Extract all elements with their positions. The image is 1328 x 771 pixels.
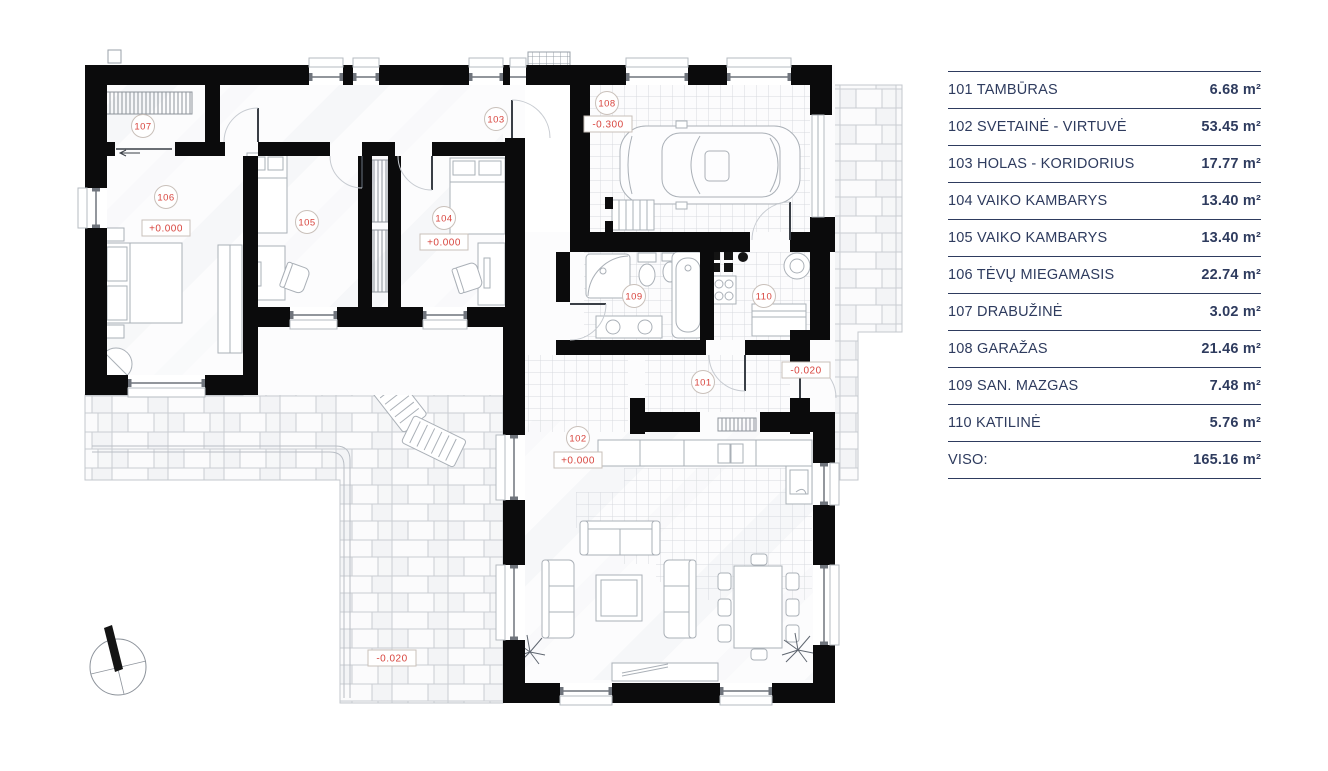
tv-bench <box>612 663 718 681</box>
room-name: 108 GARAŽAS <box>948 341 1048 357</box>
page: 107106105104103108109110101102+0.000+0.0… <box>0 0 1328 771</box>
elevation-marker: +0.000 <box>554 452 602 468</box>
room-name: 106 TĖVŲ MIEGAMASIS <box>948 267 1114 283</box>
wardrobe-shelving <box>104 92 192 114</box>
double-bed <box>104 228 182 338</box>
svg-text:-0.300: -0.300 <box>592 120 623 131</box>
room-name: VISO: <box>948 452 988 468</box>
elevation-marker: -0.300 <box>584 116 632 132</box>
closet <box>372 230 388 292</box>
svg-text:110: 110 <box>756 292 773 303</box>
room-name: 101 TAMBŪRAS <box>948 82 1058 98</box>
svg-text:-0.020: -0.020 <box>376 654 407 665</box>
kitchen-sink <box>786 466 812 504</box>
table-row: 109 SAN. MAZGAS 7.48 m² <box>948 367 1261 404</box>
svg-text:106: 106 <box>157 193 174 204</box>
double-sink <box>596 316 662 338</box>
room-marker-103: 103 <box>485 108 508 131</box>
svg-text:107: 107 <box>134 122 151 133</box>
svg-text:103: 103 <box>487 115 504 126</box>
table-row: 103 HOLAS - KORIDORIUS 17.77 m² <box>948 145 1261 182</box>
closet <box>372 160 388 222</box>
room-area: 3.02 m² <box>1210 304 1261 320</box>
table-row: 105 VAIKO KAMBARYS 13.40 m² <box>948 219 1261 256</box>
room-name: 109 SAN. MAZGAS <box>948 378 1078 394</box>
table-row: 102 SVETAINĖ - VIRTUVĖ 53.45 m² <box>948 108 1261 145</box>
toilet <box>638 253 656 286</box>
svg-text:109: 109 <box>625 292 642 303</box>
room-area: 53.45 m² <box>1201 119 1261 135</box>
svg-text:-0.020: -0.020 <box>790 366 821 377</box>
svg-text:102: 102 <box>569 434 586 445</box>
room-marker-110: 110 <box>753 285 776 308</box>
loveseat <box>542 560 574 638</box>
room-area: 5.76 m² <box>1210 415 1261 431</box>
room-marker-105: 105 <box>296 211 319 234</box>
room-area: 7.48 m² <box>1210 378 1261 394</box>
table-row: 106 TĖVŲ MIEGAMASIS 22.74 m² <box>948 256 1261 293</box>
table-row: 107 DRABUŽINĖ 3.02 m² <box>948 293 1261 330</box>
room-area: 17.77 m² <box>1201 156 1261 172</box>
elevation-marker: +0.000 <box>420 234 468 250</box>
room-area: 6.68 m² <box>1210 82 1261 98</box>
elevation-marker: -0.020 <box>782 362 830 378</box>
room-name: 110 KATILINĖ <box>948 415 1041 431</box>
table-row: 108 GARAŽAS 21.46 m² <box>948 330 1261 367</box>
boiler <box>784 253 810 279</box>
room-marker-107: 107 <box>132 115 155 138</box>
single-bed <box>450 158 505 234</box>
room-name: 102 SVETAINĖ - VIRTUVĖ <box>948 119 1127 135</box>
room-marker-108: 108 <box>596 92 619 115</box>
room-marker-106: 106 <box>155 186 178 209</box>
table-row: 104 VAIKO KAMBARYS 13.40 m² <box>948 182 1261 219</box>
room-name: 105 VAIKO KAMBARYS <box>948 230 1107 246</box>
steps <box>605 197 654 233</box>
coffee-table <box>596 575 642 621</box>
loveseat <box>664 560 696 638</box>
room-marker-101: 101 <box>692 371 715 394</box>
sofa <box>580 521 660 555</box>
desk <box>478 243 505 305</box>
room-name: 107 DRABUŽINĖ <box>948 304 1063 320</box>
svg-text:108: 108 <box>598 99 615 110</box>
svg-text:104: 104 <box>435 214 452 225</box>
floor-plan: 107106105104103108109110101102+0.000+0.0… <box>0 0 920 771</box>
room-name: 104 VAIKO KAMBARYS <box>948 193 1107 209</box>
room-marker-104: 104 <box>433 207 456 230</box>
room-marker-109: 109 <box>623 285 646 308</box>
room-marker-102: 102 <box>567 427 590 450</box>
table-row: 110 KATILINĖ 5.76 m² <box>948 404 1261 441</box>
table-row: 101 TAMBŪRAS 6.68 m² <box>948 71 1261 108</box>
vent <box>108 50 121 63</box>
kitchen-counter <box>598 440 812 466</box>
compass-icon <box>90 625 146 695</box>
room-area: 22.74 m² <box>1201 267 1261 283</box>
elevation-marker: +0.000 <box>142 220 190 236</box>
room-name: 103 HOLAS - KORIDORIUS <box>948 156 1135 172</box>
table-row: VISO: 165.16 m² <box>948 441 1261 479</box>
svg-text:+0.000: +0.000 <box>427 238 461 249</box>
room-area: 13.40 m² <box>1201 230 1261 246</box>
svg-text:+0.000: +0.000 <box>561 456 595 467</box>
room-area: 13.40 m² <box>1201 193 1261 209</box>
svg-text:101: 101 <box>694 378 711 389</box>
elevation-marker: -0.020 <box>368 650 416 666</box>
room-area: 21.46 m² <box>1201 341 1261 357</box>
bathtub <box>672 252 704 338</box>
car <box>620 121 800 209</box>
svg-text:105: 105 <box>298 218 315 229</box>
doormat <box>718 418 756 431</box>
hob <box>712 276 736 304</box>
room-area: 165.16 m² <box>1193 452 1261 468</box>
garage-door <box>812 115 824 217</box>
room-area-table: 101 TAMBŪRAS 6.68 m² 102 SVETAINĖ - VIRT… <box>948 71 1261 479</box>
svg-text:+0.000: +0.000 <box>149 224 183 235</box>
